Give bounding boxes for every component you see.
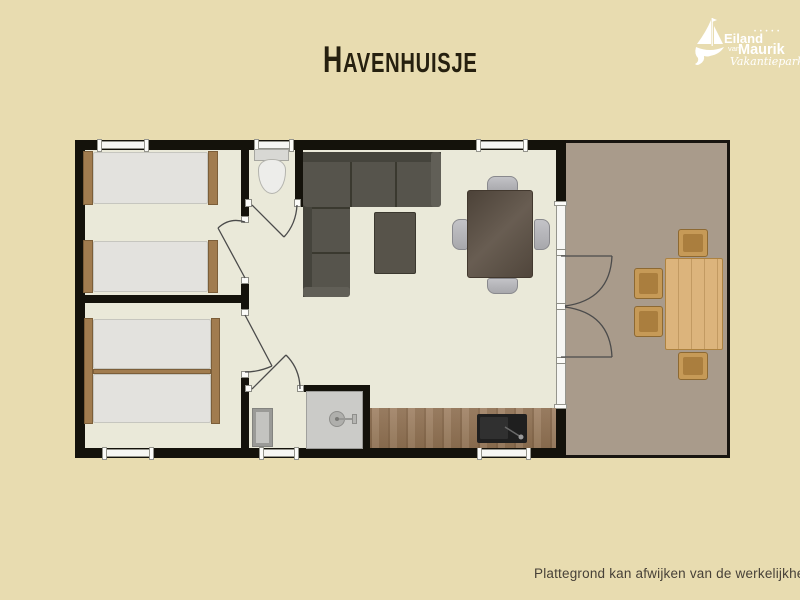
shower-drain <box>329 411 345 427</box>
door-jamb <box>294 199 301 207</box>
chair-seat <box>639 273 658 294</box>
wall-shower-right <box>362 385 370 458</box>
logo-text-vakantiepark: Vakantiepark <box>730 55 800 68</box>
window-frame <box>526 447 531 460</box>
door-jamb <box>241 277 249 284</box>
sink-basin <box>480 417 508 439</box>
single-bed <box>83 240 218 293</box>
bed-headboard <box>84 318 93 424</box>
wall-right-lower <box>556 406 566 458</box>
door-jamb <box>241 371 249 378</box>
double-bed <box>84 318 220 424</box>
logo-dots: • • • • • <box>754 29 780 35</box>
chair-seat <box>683 234 703 252</box>
dining-table <box>467 190 533 278</box>
floor-plan-page: Havenhuisje Eiland van Maurik • • • • • … <box>0 0 800 600</box>
window <box>98 141 148 149</box>
kitchen-sink <box>477 414 527 443</box>
bed-headboard <box>83 151 93 205</box>
mattress <box>93 319 211 369</box>
window <box>478 449 530 457</box>
sofa-cushion-gap <box>350 162 352 207</box>
sailboat-icon <box>695 18 724 65</box>
chair-seat <box>683 357 703 375</box>
window-frame <box>259 447 264 460</box>
window-frame <box>294 447 299 460</box>
washbasin-top <box>256 412 269 443</box>
window <box>260 449 298 457</box>
window-frame <box>149 447 154 460</box>
wall-bedroom-divider <box>75 295 249 303</box>
drain-hole <box>335 417 339 421</box>
wall-bedrooms-a <box>241 140 249 222</box>
window-frame <box>523 139 528 152</box>
washbasin <box>252 408 273 447</box>
terrace-chair <box>678 229 708 257</box>
mattress <box>93 374 211 423</box>
door-jamb <box>241 216 249 223</box>
kitchen-counter <box>370 408 556 448</box>
window <box>255 141 293 149</box>
disclaimer-text: Plattegrond kan afwijken van de werkelij… <box>534 566 800 581</box>
dining-chair <box>534 219 550 250</box>
window-frame <box>476 139 481 152</box>
window <box>477 141 527 149</box>
door-jamb <box>556 249 566 256</box>
sofa-armrest <box>431 152 441 207</box>
bed-headboard <box>83 240 93 293</box>
single-bed <box>83 151 218 205</box>
dining-chair <box>452 219 468 250</box>
door-jamb <box>245 199 252 207</box>
bed-footboard <box>208 151 218 205</box>
sofa-cushion-gap <box>312 207 350 209</box>
shower-tap <box>352 414 357 424</box>
window-frame <box>102 447 107 460</box>
shower-screen <box>306 392 307 448</box>
window-frame <box>477 447 482 460</box>
wall-bathroom-top-b <box>300 385 370 392</box>
door-jamb <box>297 385 304 392</box>
coffee-table <box>374 212 416 274</box>
bed-footboard <box>211 318 220 424</box>
dining-chair <box>487 278 518 294</box>
chair-seat <box>639 311 658 332</box>
door-jamb <box>556 357 566 364</box>
mattress <box>93 152 208 204</box>
bed-footboard <box>208 240 218 293</box>
door-jamb <box>556 303 566 310</box>
corner-sofa-top-arm <box>303 152 441 207</box>
sofa-cushion-gap <box>312 252 350 254</box>
wall-toilet-right <box>295 140 303 207</box>
terrace-chair <box>678 352 708 380</box>
terrace-chair <box>634 306 663 337</box>
window-frame <box>554 201 567 206</box>
window-frame <box>289 139 294 152</box>
park-logo: Eiland van Maurik • • • • • Vakantiepark <box>670 12 800 78</box>
sofa-cushion-gap <box>395 162 397 207</box>
sofa-backrest <box>303 152 441 162</box>
page-title-text: Havenhuisje <box>323 44 478 79</box>
window <box>103 449 153 457</box>
door-jamb <box>241 309 249 316</box>
sofa-armrest <box>303 287 350 297</box>
mattress <box>93 241 208 292</box>
door-jamb <box>245 385 252 392</box>
wall-right-upper <box>556 140 566 204</box>
terrace-chair <box>634 268 663 299</box>
terrace-table <box>665 258 723 350</box>
